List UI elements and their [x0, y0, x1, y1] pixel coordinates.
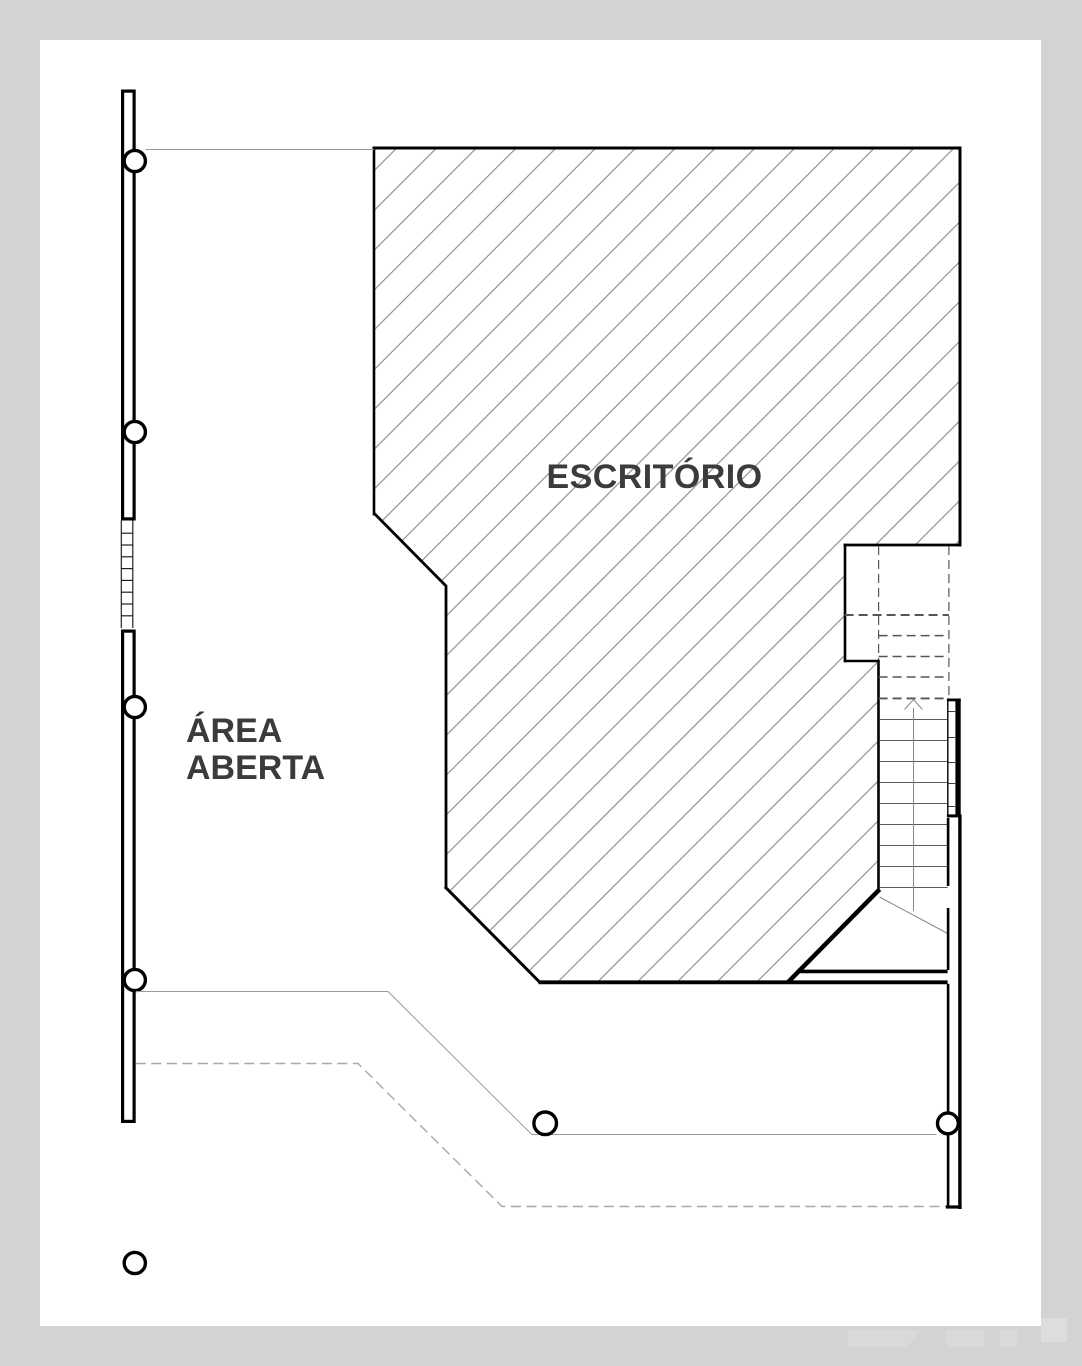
svg-text:ABERTA: ABERTA — [186, 749, 325, 787]
svg-text:ÁREA: ÁREA — [186, 712, 282, 750]
svg-text:ESCRITÓRIO: ESCRITÓRIO — [547, 458, 763, 496]
